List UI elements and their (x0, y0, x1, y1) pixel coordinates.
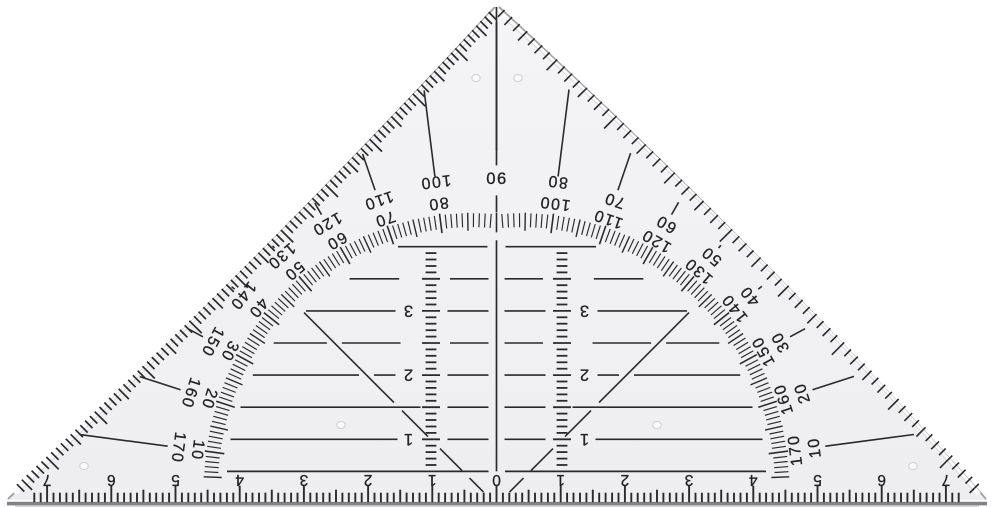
svg-text:2: 2 (404, 366, 413, 384)
svg-text:1: 1 (580, 430, 589, 448)
svg-text:3: 3 (300, 471, 309, 488)
svg-text:10: 10 (187, 439, 207, 462)
svg-text:3: 3 (580, 302, 589, 320)
svg-text:1: 1 (556, 471, 565, 488)
svg-text:2: 2 (580, 366, 589, 384)
svg-text:1: 1 (404, 430, 413, 448)
svg-text:6: 6 (877, 471, 886, 488)
svg-text:2: 2 (621, 471, 630, 488)
svg-text:6: 6 (107, 471, 116, 488)
svg-text:0: 0 (492, 471, 501, 488)
svg-text:80: 80 (546, 172, 569, 191)
svg-text:3: 3 (685, 471, 694, 488)
svg-text:3: 3 (404, 302, 413, 320)
svg-text:90: 90 (485, 169, 507, 187)
svg-text:80: 80 (427, 193, 450, 212)
svg-text:10: 10 (805, 436, 825, 459)
svg-text:5: 5 (813, 471, 822, 488)
svg-text:7: 7 (942, 471, 951, 488)
svg-text:4: 4 (749, 471, 758, 488)
svg-text:5: 5 (171, 471, 180, 488)
svg-text:2: 2 (364, 471, 373, 488)
svg-text:7: 7 (43, 471, 52, 488)
svg-text:4: 4 (235, 471, 244, 488)
svg-text:1: 1 (428, 471, 437, 488)
